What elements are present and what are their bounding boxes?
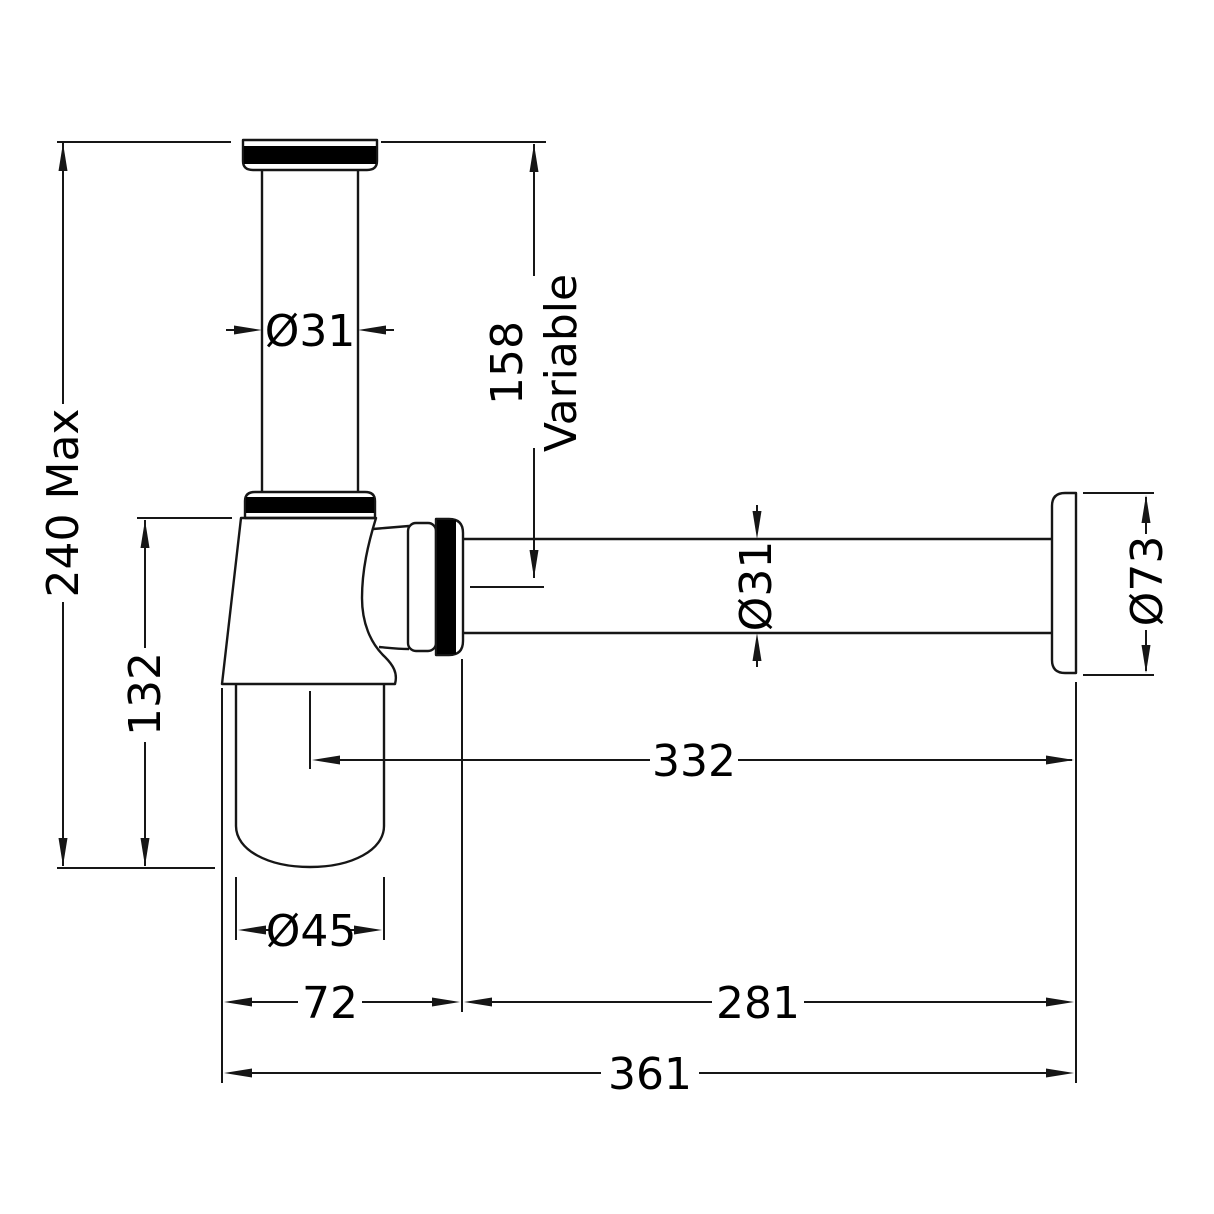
technical-drawing-page: 240 Max 132 Ø31 158 Variable xyxy=(0,0,1214,1214)
wall-flange xyxy=(1052,493,1076,673)
trap-height-label: 132 xyxy=(120,652,171,736)
extension-lines xyxy=(57,142,1154,1083)
arrowhead-right xyxy=(432,998,460,1007)
outlet-diameter-label: Ø31 xyxy=(731,541,782,632)
top-slip-nut-seal-band xyxy=(244,146,376,164)
arrowhead-left xyxy=(224,1069,252,1078)
arrowhead-down xyxy=(530,550,539,578)
outlet-nut-seal-band xyxy=(437,520,456,654)
arrowhead-up xyxy=(753,633,762,661)
arrowhead-right xyxy=(1046,1069,1074,1078)
flange-diameter-label: Ø73 xyxy=(1122,536,1173,627)
dim-flange-diameter: Ø73 xyxy=(1122,495,1173,673)
arrowhead-left xyxy=(312,756,340,765)
outlet-neck-bottom-edge xyxy=(379,647,409,649)
dim-inlet-diameter: Ø31 xyxy=(226,306,394,357)
arrowhead-left xyxy=(464,998,492,1007)
arrowhead-up xyxy=(59,143,68,171)
arrowhead-up xyxy=(530,144,539,172)
arrowhead-right xyxy=(234,326,262,335)
arrowhead-down xyxy=(141,838,150,866)
dim-trap-width: 72 xyxy=(224,978,460,1029)
arrowhead-right xyxy=(1046,998,1074,1007)
outlet-neck-top-edge xyxy=(373,526,409,529)
dim-trap-height: 132 xyxy=(120,520,171,866)
wall-flange-outline xyxy=(1052,493,1076,673)
trap-body-outline xyxy=(222,518,396,684)
arrowhead-right xyxy=(1046,756,1074,765)
top-slip-nut xyxy=(243,140,377,170)
arrowhead-down xyxy=(1142,645,1151,673)
overall-projection-label: 361 xyxy=(608,1049,692,1100)
dim-bottle-centre-to-wall: 332 xyxy=(312,736,1074,787)
arrowhead-left xyxy=(224,998,252,1007)
lower-slip-nut xyxy=(245,492,375,518)
inlet-length-label: 158 xyxy=(482,321,533,405)
inlet-diameter-label: Ø31 xyxy=(265,306,356,357)
bottle-trap-dimension-drawing: 240 Max 132 Ø31 158 Variable xyxy=(0,0,1214,1214)
arrowhead-up xyxy=(1142,495,1151,523)
bottle-diameter-label: Ø45 xyxy=(266,906,357,957)
dim-outlet-diameter: Ø31 xyxy=(731,505,782,667)
arrowhead-down xyxy=(59,838,68,866)
outlet-projection-label: 281 xyxy=(716,978,800,1029)
outlet-ring xyxy=(408,523,436,651)
dim-inlet-length: 158 Variable xyxy=(482,144,587,578)
overall-height-label: 240 Max xyxy=(38,409,89,598)
trap-body xyxy=(222,518,409,684)
dim-overall-height: 240 Max xyxy=(38,143,89,866)
arrowhead-left xyxy=(358,326,386,335)
arrowhead-up xyxy=(141,520,150,548)
lower-slip-nut-seal-band xyxy=(246,497,374,513)
bottle-centre-to-wall-label: 332 xyxy=(652,736,736,787)
arrowhead-left xyxy=(238,926,266,935)
dim-outlet-projection: 281 xyxy=(464,978,1074,1029)
trap-width-label: 72 xyxy=(302,978,358,1029)
arrowhead-right xyxy=(354,926,382,935)
arrowhead-down xyxy=(753,511,762,539)
outlet-connector-nut xyxy=(408,519,463,655)
dim-overall-projection: 361 xyxy=(224,1049,1074,1100)
inlet-length-note-label: Variable xyxy=(536,274,587,452)
dim-bottle-diameter: Ø45 xyxy=(238,906,382,957)
